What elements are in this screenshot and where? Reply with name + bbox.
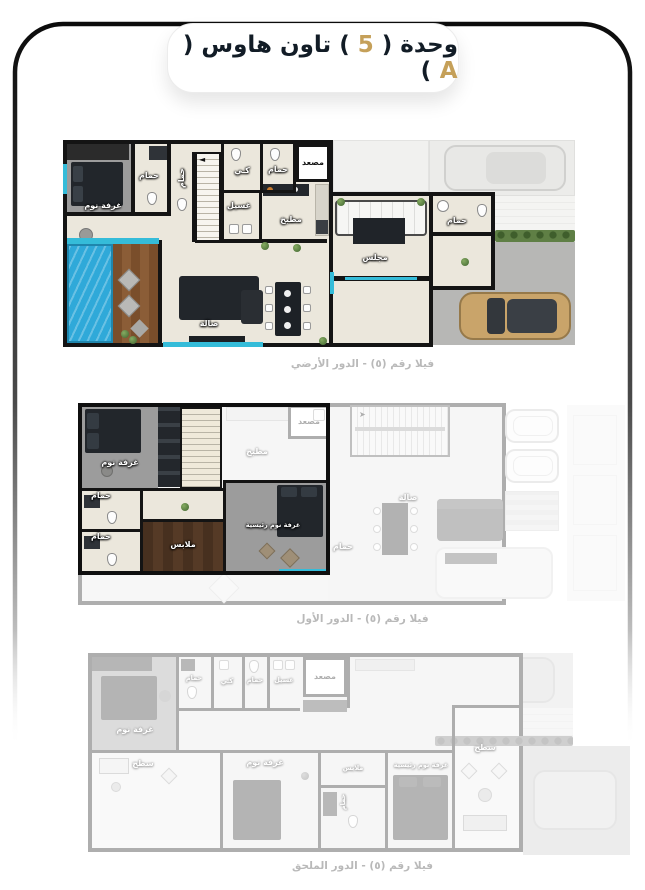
dining-table-icon (382, 503, 408, 555)
sofa-icon (437, 499, 503, 541)
title-middle: ) تاون هاوس ( (183, 32, 358, 58)
wall (452, 705, 455, 848)
wall (221, 144, 224, 242)
room-label-hall: صالة (399, 494, 418, 502)
sofa-chaise-icon (241, 290, 263, 324)
bed-icon (233, 780, 281, 840)
plant-icon (461, 258, 469, 266)
plant-icon (293, 244, 301, 252)
floor-caption-annex: فيلا رقم (٥) - الدور الملحق (80, 860, 645, 872)
window-strip (63, 164, 67, 194)
brochure-page: وحدة ( 5 ) تاون هاوس ( A ) غرفة (0, 0, 645, 890)
highlighted-unit-outline (78, 403, 330, 575)
chair-icon (410, 525, 418, 533)
dining-table-icon (275, 282, 301, 336)
shower-deck (505, 491, 559, 531)
washer-icon (273, 660, 283, 670)
room-label-bath: حمام (186, 675, 202, 682)
wall (167, 144, 171, 216)
room-label-dressing: ملابس (170, 541, 195, 549)
neighbor-room (573, 535, 617, 591)
gold-car-windshield (487, 298, 505, 334)
wall (260, 144, 263, 192)
window-strip (163, 342, 263, 347)
bathtub-basin (513, 416, 553, 436)
wall (179, 708, 300, 711)
plate-icon (284, 322, 291, 329)
room-label-bath: حمام (268, 166, 288, 174)
gold-car-roof (507, 299, 557, 333)
washer-icon (229, 224, 239, 234)
room-label-bath: حمام (139, 172, 159, 180)
wall (242, 657, 245, 708)
room-label-master-bedroom: غرفة نوم رئيسية (394, 762, 449, 769)
bathtub-icon (505, 409, 559, 443)
sink-icon (181, 659, 195, 671)
room-label-hall: صالة (200, 320, 219, 328)
hedge-strip (435, 736, 573, 746)
elevator-equipment (303, 700, 347, 712)
gold-car-icon (459, 292, 571, 340)
room-label-bath: حمام (178, 168, 186, 188)
unit-number: 5 (358, 32, 374, 58)
window-strip (345, 277, 417, 280)
chair-icon (159, 690, 171, 702)
room-label-ironing: كـي (221, 678, 234, 685)
wall (267, 657, 270, 708)
room-label-bath: حمام (91, 492, 111, 500)
wall (321, 785, 385, 788)
sofa-back (437, 499, 503, 509)
unit-letter: A (440, 58, 458, 84)
sink-icon (437, 200, 449, 212)
wall (158, 240, 162, 347)
wall (318, 753, 321, 848)
room-label-dressing: ملابس (343, 765, 364, 772)
bathtub-basin (513, 456, 553, 476)
chair-icon (265, 304, 273, 312)
carport-slab (333, 140, 429, 192)
wall (176, 657, 179, 753)
bed-icon (101, 676, 157, 720)
room-label-bedroom2: غرفة نوم (246, 759, 283, 767)
plant-icon (301, 772, 309, 780)
bed-icon (393, 775, 448, 840)
room-label-bath: حمام (247, 677, 263, 684)
room-label-bath: حمام (340, 794, 347, 810)
plate-icon (284, 306, 291, 313)
plant-icon (319, 337, 327, 345)
driveway (523, 746, 630, 855)
wall (431, 232, 493, 236)
room-label-bath: حمام (447, 217, 467, 225)
room-label-bedroom: غرفة نوم (116, 726, 153, 734)
annex-floor-plan: غرفة نوم حمام كـي حمام غسيل مصعد سطح غرف… (63, 650, 630, 855)
fixture-icon (219, 660, 229, 670)
outdoor-sofa-icon (99, 758, 129, 774)
chair-icon (265, 322, 273, 330)
wall (385, 753, 388, 848)
pillow (73, 166, 83, 182)
title-suffix: ) (421, 58, 440, 84)
wall (131, 144, 135, 216)
pillow (73, 186, 83, 202)
neighbor-strip (567, 405, 625, 601)
chair-icon (410, 507, 418, 515)
title-prefix: وحدة ( (374, 32, 458, 58)
wall (211, 657, 214, 708)
plant-icon (337, 198, 345, 206)
chair-icon (303, 304, 311, 312)
unit-title-badge: وحدة ( 5 ) تاون هاوس ( A ) (167, 23, 459, 93)
hedge-strip (495, 230, 575, 242)
floor-caption-first: فيلا رقم (٥) - الدور الأول (80, 613, 645, 625)
wardrobe-icon (92, 657, 152, 671)
wall (220, 753, 223, 848)
plant-icon (129, 336, 137, 344)
sink-icon (323, 792, 337, 816)
plant-icon (417, 198, 425, 206)
tv-console-icon (445, 553, 497, 564)
room-label-ironing: كـي (234, 167, 249, 175)
bathtub-icon (505, 449, 559, 483)
room-label-elevator: مصعد (302, 159, 324, 167)
room-label-kitchen: مطبخ (280, 216, 302, 224)
plate-icon (284, 290, 291, 297)
wall (259, 193, 262, 241)
room-label-laundry: غسيل (227, 202, 251, 210)
chair-icon (373, 525, 381, 533)
washer-icon (285, 660, 295, 670)
car-icon (533, 770, 617, 830)
gray-car-roof (486, 152, 546, 184)
outdoor-table-icon (111, 782, 121, 792)
pillow (423, 777, 441, 787)
room-label-bedroom: غرفة نوم (84, 202, 121, 210)
washer-icon (242, 224, 252, 234)
stairs-landing-rail (355, 427, 445, 431)
wall (92, 750, 452, 753)
room-label-terrace: سطح (132, 760, 153, 768)
room-label-bedroom: غرفة نوم (101, 459, 138, 467)
room-label-majlis: مجلس (362, 254, 387, 262)
wall (347, 657, 350, 708)
pool-ledge (67, 238, 159, 244)
plant-icon (261, 242, 269, 250)
chair-icon (265, 286, 273, 294)
stairs-direction-arrow: ➤ (359, 411, 366, 419)
outdoor-table-icon (478, 788, 492, 802)
counter-icon (355, 659, 415, 671)
pillow (399, 777, 417, 787)
bed-icon (71, 162, 123, 206)
chair-icon (373, 507, 381, 515)
swimming-pool (67, 244, 113, 343)
page-title: وحدة ( 5 ) تاون هاوس ( A ) (168, 32, 458, 84)
gray-car-icon (444, 145, 566, 191)
room-label-bath: حمام (91, 533, 111, 541)
patio-strip (82, 577, 328, 601)
majlis-rug-icon (353, 218, 405, 244)
ground-floor-plan: غرفة نوم حمام حمام ◄ كـي حمام مصعد (63, 140, 575, 352)
outdoor-sofa-icon (463, 815, 507, 831)
first-floor-plan: مطبخ مصعد ➤ صالة حمام (63, 395, 630, 610)
neighbor-room (573, 475, 617, 525)
chair-icon (373, 543, 381, 551)
window-strip (330, 272, 334, 294)
neighbor-room (573, 415, 617, 465)
fridge-icon (316, 220, 328, 234)
room-label-terrace: سطح (474, 744, 495, 752)
room-label-bath: حمام (333, 543, 353, 551)
stairs-icon (195, 152, 221, 242)
stairs-direction-arrow: ◄ (199, 156, 205, 164)
room-label-master-bedroom: غرفة نوم رئيسية (246, 522, 301, 529)
garage-slab (429, 140, 575, 196)
wardrobe-icon (67, 144, 129, 160)
floor-caption-ground: فيلا رقم (٥) - الدور الأرضي (80, 358, 645, 370)
wall (67, 212, 171, 216)
wall (455, 705, 519, 708)
chair-icon (303, 322, 311, 330)
sink-icon (149, 146, 167, 160)
chair-icon (303, 286, 311, 294)
chair-icon (410, 543, 418, 551)
plant-icon (121, 330, 129, 338)
room-label-laundry: غسيل (274, 677, 294, 684)
room-label-elevator: مصعد (314, 673, 336, 681)
